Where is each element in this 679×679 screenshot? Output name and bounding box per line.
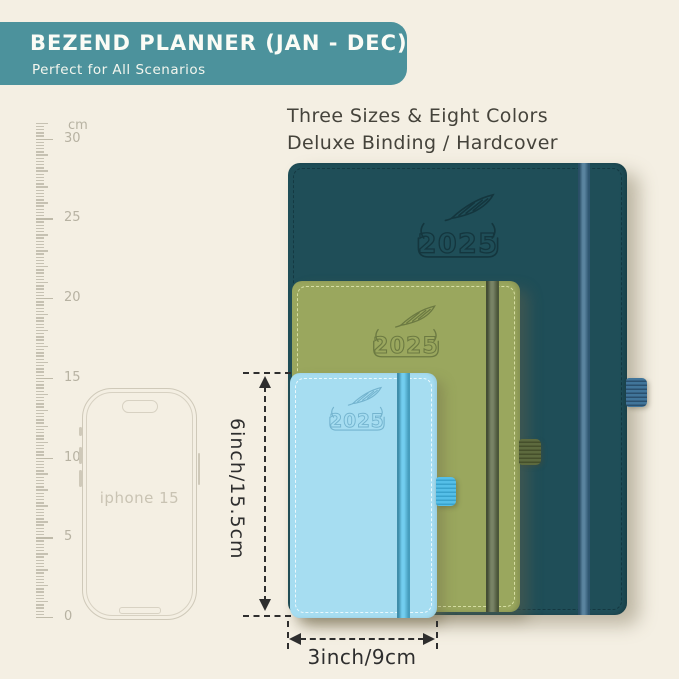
ruler-tick [36, 257, 44, 258]
ruler-tick [36, 330, 48, 331]
ruler-label: 15 [64, 370, 81, 385]
arrow-right-icon [423, 633, 435, 645]
ruler-tick [36, 489, 48, 490]
ruler-tick [36, 308, 44, 309]
ruler-tick [36, 215, 44, 216]
ruler-label: 0 [64, 609, 72, 624]
ruler-tick [36, 442, 48, 443]
mute-switch-icon [79, 427, 82, 436]
pen-loop [436, 477, 456, 506]
ruler-tick [36, 432, 44, 433]
ruler-tick [36, 221, 44, 222]
ruler-tick [36, 403, 44, 404]
ruler-tick [36, 295, 44, 296]
ruler-tick [36, 320, 44, 321]
ruler-tick [36, 339, 44, 340]
ruler-tick [36, 422, 44, 423]
ruler-tick [36, 205, 44, 206]
ruler-tick [36, 419, 44, 420]
ruler-tick [36, 426, 48, 427]
pen-loop [519, 439, 541, 465]
home-bar-icon [119, 607, 161, 614]
ruler-tick [36, 336, 44, 337]
ruler-tick [36, 528, 44, 529]
arrow-left-icon [289, 633, 301, 645]
ruler-tick [36, 505, 48, 506]
ruler-tick [36, 190, 44, 191]
ruler-tick [36, 276, 44, 277]
ruler-tick [36, 129, 44, 130]
ruler-tick [36, 458, 53, 459]
ruler-tick [36, 467, 44, 468]
volume-down-button-icon [79, 470, 82, 487]
ruler-tick [36, 362, 48, 363]
ruler-tick [36, 604, 44, 605]
ruler-tick [36, 174, 44, 175]
ruler-tick [36, 333, 44, 334]
product-image: BEZEND PLANNER (JAN - DEC) Perfect for A… [0, 0, 679, 679]
ruler-tick [36, 292, 44, 293]
ruler-tick [36, 132, 44, 133]
ruler-tick [36, 563, 44, 564]
ruler-tick [36, 614, 44, 615]
ruler-tick [36, 285, 44, 286]
ruler-tick [36, 151, 44, 152]
ruler-tick [36, 547, 44, 548]
ruler-tick [36, 247, 44, 248]
ruler-tick [36, 183, 44, 184]
ruler-tick [36, 598, 44, 599]
ruler-tick [36, 413, 44, 414]
ruler-tick [36, 158, 44, 159]
ruler-tick [36, 279, 44, 280]
ruler-tick [36, 406, 44, 407]
ruler-tick [36, 167, 44, 168]
ruler-tick [36, 410, 48, 411]
ruler-tick [36, 199, 44, 200]
ruler-tick [36, 260, 44, 261]
ruler-tick [36, 579, 44, 580]
ruler-tick [36, 591, 44, 592]
ruler-tick [36, 521, 48, 522]
power-button-icon [198, 453, 201, 485]
ruler-label: 30 [64, 131, 81, 146]
ruler-tick [36, 237, 44, 238]
iphone-outline: iphone 15 [82, 388, 197, 620]
ruler-tick [36, 164, 44, 165]
ruler-tick [36, 145, 44, 146]
ruler-tick [36, 263, 44, 264]
ruler-tick [36, 531, 44, 532]
ruler-tick [36, 499, 44, 500]
ruler-tick [36, 154, 48, 155]
ruler-tick [36, 438, 44, 439]
year-logo: 2025 [404, 191, 512, 267]
year-text: 2025 [418, 228, 499, 259]
ruler-tick [36, 556, 44, 557]
ruler-tick [36, 202, 48, 203]
ruler-tick [36, 231, 44, 232]
ruler-tick [36, 135, 44, 136]
ruler-tick [36, 553, 48, 554]
ruler-tick [36, 435, 44, 436]
ruler-tick [36, 269, 44, 270]
iphone-label: iphone 15 [83, 489, 196, 507]
ruler-tick [36, 454, 44, 455]
ruler-tick [36, 387, 44, 388]
page-subtitle: Perfect for All Scenarios [32, 62, 206, 78]
ruler-tick [36, 241, 44, 242]
ruler-tick [36, 477, 44, 478]
ruler-tick [36, 566, 44, 567]
ruler-tick [36, 588, 44, 589]
ruler-tick [36, 212, 44, 213]
elastic-band [486, 281, 499, 612]
ruler-tick [36, 509, 44, 510]
ruler-tick [36, 349, 44, 350]
year-text: 2025 [329, 411, 384, 432]
ruler-tick [36, 304, 44, 305]
ruler-tick [36, 218, 53, 219]
ruler-tick [36, 391, 44, 392]
ruler-tick [36, 496, 44, 497]
ruler-tick [36, 582, 44, 583]
feather-icon [396, 306, 435, 327]
ruler-tick [36, 400, 44, 401]
ruler-tick [36, 288, 44, 289]
ruler-tick [36, 298, 53, 299]
ruler-tick [36, 311, 44, 312]
ruler-tick [36, 461, 44, 462]
elastic-band [578, 163, 590, 615]
ruler-tick [36, 359, 44, 360]
dynamic-island-icon [122, 400, 158, 413]
ruler-tick [36, 375, 44, 376]
ruler-tick [36, 228, 44, 229]
year-logo: 2025 [362, 303, 450, 365]
dim-height-tick-bottom [243, 615, 291, 617]
ruler-tick [36, 282, 48, 283]
ruler-tick [36, 524, 44, 525]
ruler-tick [36, 585, 48, 586]
dim-height-line [264, 386, 266, 602]
ruler-tick [36, 560, 44, 561]
ruler-tick [36, 148, 44, 149]
feather-icon [348, 388, 381, 406]
ruler-tick [36, 394, 48, 395]
ruler-tick [36, 196, 44, 197]
tagline-line2: Deluxe Binding / Hardcover [287, 130, 558, 157]
ruler-tick [36, 161, 44, 162]
ruler-tick [36, 346, 48, 347]
page-title: BEZEND PLANNER (JAN - DEC) [30, 31, 408, 55]
feather-icon [445, 195, 493, 221]
ruler-tick [36, 493, 44, 494]
tagline: Three Sizes & Eight Colors Deluxe Bindin… [287, 103, 558, 157]
dim-height-tick-top [243, 372, 291, 374]
ruler-tick [36, 186, 48, 187]
ruler-tick [36, 381, 44, 382]
ruler-tick [36, 250, 48, 251]
ruler-tick [36, 607, 44, 608]
arrow-down-icon [259, 599, 271, 611]
ruler-tick [36, 451, 44, 452]
ruler-tick [36, 343, 44, 344]
ruler-tick [36, 365, 44, 366]
arrow-up-icon [259, 376, 271, 388]
ruler-tick [36, 378, 53, 379]
ruler-tick [36, 448, 44, 449]
ruler-tick [36, 537, 53, 538]
year-logo: 2025 [320, 385, 394, 437]
ruler-tick [36, 324, 44, 325]
volume-up-button-icon [79, 447, 82, 464]
ruler-label: 25 [64, 210, 81, 225]
ruler-tick [36, 301, 44, 302]
pen-loop [626, 378, 647, 407]
ruler-tick [36, 371, 44, 372]
ruler-tick [36, 445, 44, 446]
ruler-tick [36, 139, 53, 140]
ruler-tick [36, 244, 44, 245]
ruler-tick [36, 384, 44, 385]
ruler-tick [36, 572, 44, 573]
ruler-tick [36, 617, 53, 618]
ruler-tick [36, 355, 44, 356]
ruler-tick [36, 518, 44, 519]
ruler-tick [36, 142, 44, 143]
ruler-tick [36, 611, 44, 612]
ruler-tick [36, 234, 48, 235]
ruler-tick [36, 314, 48, 315]
ruler-tick [36, 512, 44, 513]
ruler-tick [36, 368, 44, 369]
ruler-tick [36, 180, 44, 181]
ruler-tick [36, 534, 44, 535]
ruler-tick [36, 601, 48, 602]
ruler-tick [36, 544, 44, 545]
planner-small: 2025 [290, 373, 437, 618]
header-banner: BEZEND PLANNER (JAN - DEC) Perfect for A… [0, 22, 407, 85]
dim-width-tick-right [436, 621, 438, 649]
ruler-tick [36, 515, 44, 516]
ruler-tick [36, 569, 48, 570]
elastic-band [397, 373, 410, 618]
ruler-tick [36, 464, 44, 465]
ruler-tick [36, 473, 48, 474]
ruler-tick [36, 352, 44, 353]
ruler-tick [36, 540, 44, 541]
ruler-tick [36, 126, 44, 127]
ruler-tick [36, 170, 48, 171]
ruler-tick [36, 266, 48, 267]
dim-height-label: 6inch/15.5cm [226, 418, 248, 560]
ruler-label: 5 [64, 529, 72, 544]
ruler-tick [36, 317, 44, 318]
ruler-tick [36, 480, 44, 481]
ruler-tick [36, 416, 44, 417]
dim-width-label: 3inch/9cm [297, 645, 427, 669]
ruler-tick [36, 550, 44, 551]
ruler-tick [36, 502, 44, 503]
ruler-tick [36, 397, 44, 398]
ruler-tick [36, 177, 44, 178]
ruler-tick [36, 486, 44, 487]
ruler-label: 20 [64, 290, 81, 305]
tagline-line1: Three Sizes & Eight Colors [287, 103, 558, 130]
ruler-tick [36, 327, 44, 328]
ruler-tick [36, 272, 44, 273]
ruler-tick [36, 193, 44, 194]
ruler-tick [36, 470, 44, 471]
ruler-tick [36, 253, 44, 254]
ruler-tick [36, 123, 48, 124]
ruler-tick [36, 576, 44, 577]
ruler-tick [36, 209, 44, 210]
year-text: 2025 [373, 334, 439, 359]
ruler-tick [36, 429, 44, 430]
ruler-tick [36, 225, 44, 226]
ruler-tick [36, 483, 44, 484]
ruler-tick [36, 595, 44, 596]
dim-width-line [300, 638, 424, 640]
